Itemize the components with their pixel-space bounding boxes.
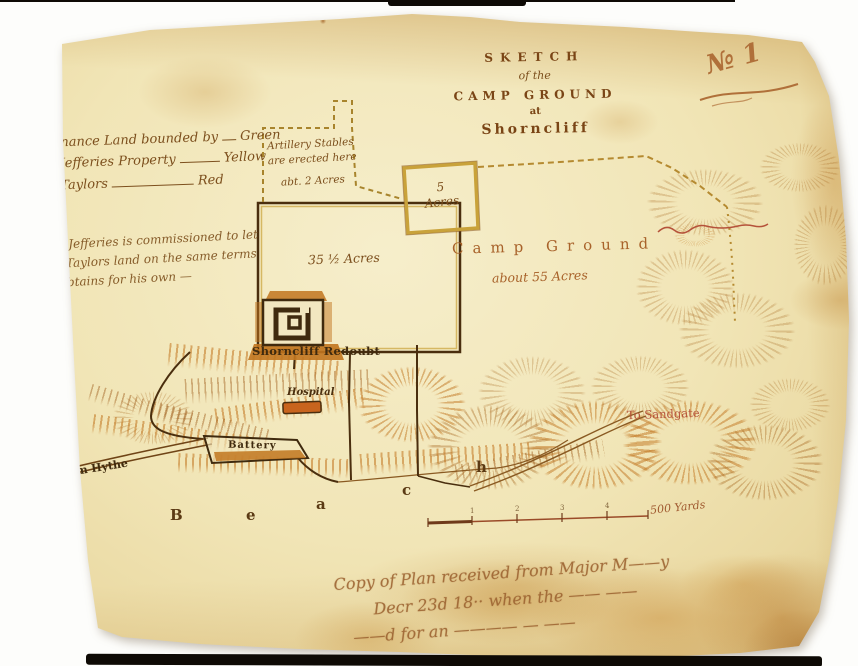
legend: Ordnance Land bounded by Green Mr Jeffer… (35, 128, 275, 201)
fence-line-1 (349, 353, 351, 480)
title-line-sketch: SKETCH (434, 48, 634, 65)
paper-sheet: SKETCH of the CAMP GROUND at Shorncliff … (0, 0, 858, 666)
coastline (338, 440, 568, 482)
cliff-boundary-west (151, 352, 203, 439)
title-line-camp-ground: CAMP GROUND (435, 86, 635, 103)
beach-letter: a (316, 495, 326, 513)
scan-border-bottom (86, 654, 822, 666)
camp-boundary-dashed (478, 156, 727, 207)
road-to-sandgate-label: To Sandgate (627, 406, 700, 423)
beach-letter: B (170, 506, 183, 524)
beach-letter: h (476, 458, 487, 476)
five-acres-label: 5 Acres (423, 178, 460, 211)
scale-bar (428, 510, 648, 527)
beach-letter: e (246, 506, 256, 524)
fence-line-3 (418, 476, 470, 487)
battery-label: Battery (228, 440, 277, 452)
camp-boundary-dotted (727, 207, 735, 322)
legend-label: Mr Jefferies Property (36, 152, 176, 172)
plate-number-flourish (712, 98, 752, 106)
cliff-boundary-battery-east (298, 458, 338, 482)
scale-tick-label: 3 (560, 504, 564, 512)
map-title: SKETCH of the CAMP GROUND at Shorncliff (434, 48, 635, 138)
legend-rule (112, 184, 194, 188)
redoubt-label: Shorncliff Redoubt (252, 344, 380, 358)
title-line-of-the: of the (435, 67, 635, 83)
stream-line (658, 224, 768, 233)
building-icon (283, 401, 321, 413)
legend-label: Ordnance Land bounded by (35, 130, 218, 151)
fence-line-2 (417, 345, 418, 476)
legend-rule (180, 161, 220, 163)
scale-tick-label: 4 (605, 502, 609, 510)
road-to-sandgate-line (474, 416, 646, 491)
paper-sheet-wrap: SKETCH of the CAMP GROUND at Shorncliff … (0, 0, 858, 666)
legend-rule (222, 139, 236, 140)
hospital-label: Hospital (287, 387, 334, 398)
scan-border-top (0, 0, 735, 2)
marginal-note: " Mr Jefferies is commissioned to let Mr… (37, 225, 261, 293)
legend-color-word: Yellow (223, 149, 266, 165)
road-to-sandgate-line (470, 411, 643, 486)
scale-tick-label: 2 (515, 505, 519, 513)
scan-border-top-thick (388, 0, 526, 6)
scale-tick-label: 1 (470, 507, 474, 515)
title-line-at: at (435, 104, 635, 118)
scanned-map-image: SKETCH of the CAMP GROUND at Shorncliff … (0, 0, 858, 666)
stables-line: are erected here (267, 150, 357, 170)
legend-label: Mr Taylors (36, 177, 108, 194)
plot-acreage-label: 35 ½ Acres (308, 250, 380, 267)
plate-number-flourish (700, 84, 798, 100)
stables-label: Artillery Stables are erected here abt. … (267, 135, 358, 192)
legend-color-word: Red (198, 173, 224, 189)
beach-letter: c (402, 481, 411, 499)
